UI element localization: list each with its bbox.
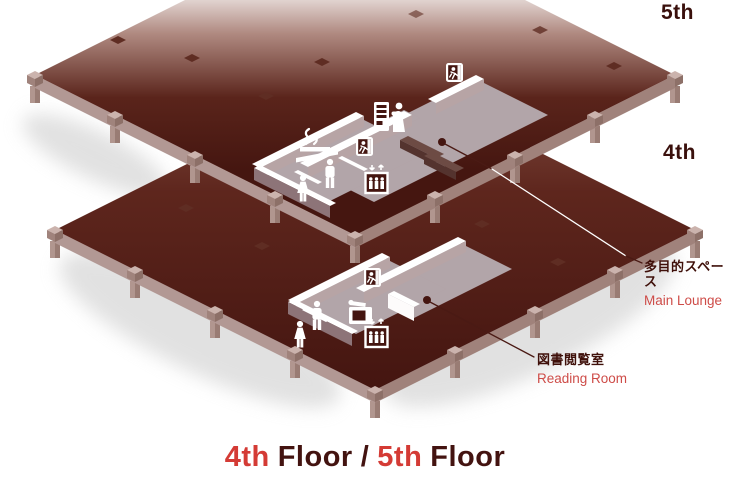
emergency-exit-icon xyxy=(364,268,381,287)
title-floor-word-2: Floor xyxy=(430,441,505,474)
leader-dot xyxy=(438,138,446,146)
floor-tag-5th: 5th xyxy=(661,1,694,25)
reading-room-label-en: Reading Room xyxy=(537,371,627,387)
reading-room-label: 図書閲覧室 Reading Room xyxy=(537,353,627,386)
main-lounge-label-en: Main Lounge xyxy=(644,293,730,309)
title-floor-word-1: Floor xyxy=(278,441,353,474)
emergency-exit-icon xyxy=(446,63,463,82)
reading-room-label-jp: 図書閲覧室 xyxy=(537,353,627,368)
leader-dot xyxy=(423,296,431,304)
emergency-exit-icon xyxy=(356,137,373,156)
main-lounge-label: 多目的スペース Main Lounge xyxy=(644,260,730,308)
title-4th: 4th xyxy=(225,441,270,474)
floor-tag-4th: 4th xyxy=(663,141,696,165)
main-lounge-label-jp: 多目的スペース xyxy=(644,260,730,290)
isometric-floor-map xyxy=(0,0,730,480)
title-separator: / xyxy=(361,441,370,474)
page-title: 4thFloor/5thFloor xyxy=(0,441,730,474)
floor-guide-diagram: 5th 4th 多目的スペース Main Lounge 図書閲覧室 Readin… xyxy=(0,0,730,480)
title-5th: 5th xyxy=(377,441,422,474)
